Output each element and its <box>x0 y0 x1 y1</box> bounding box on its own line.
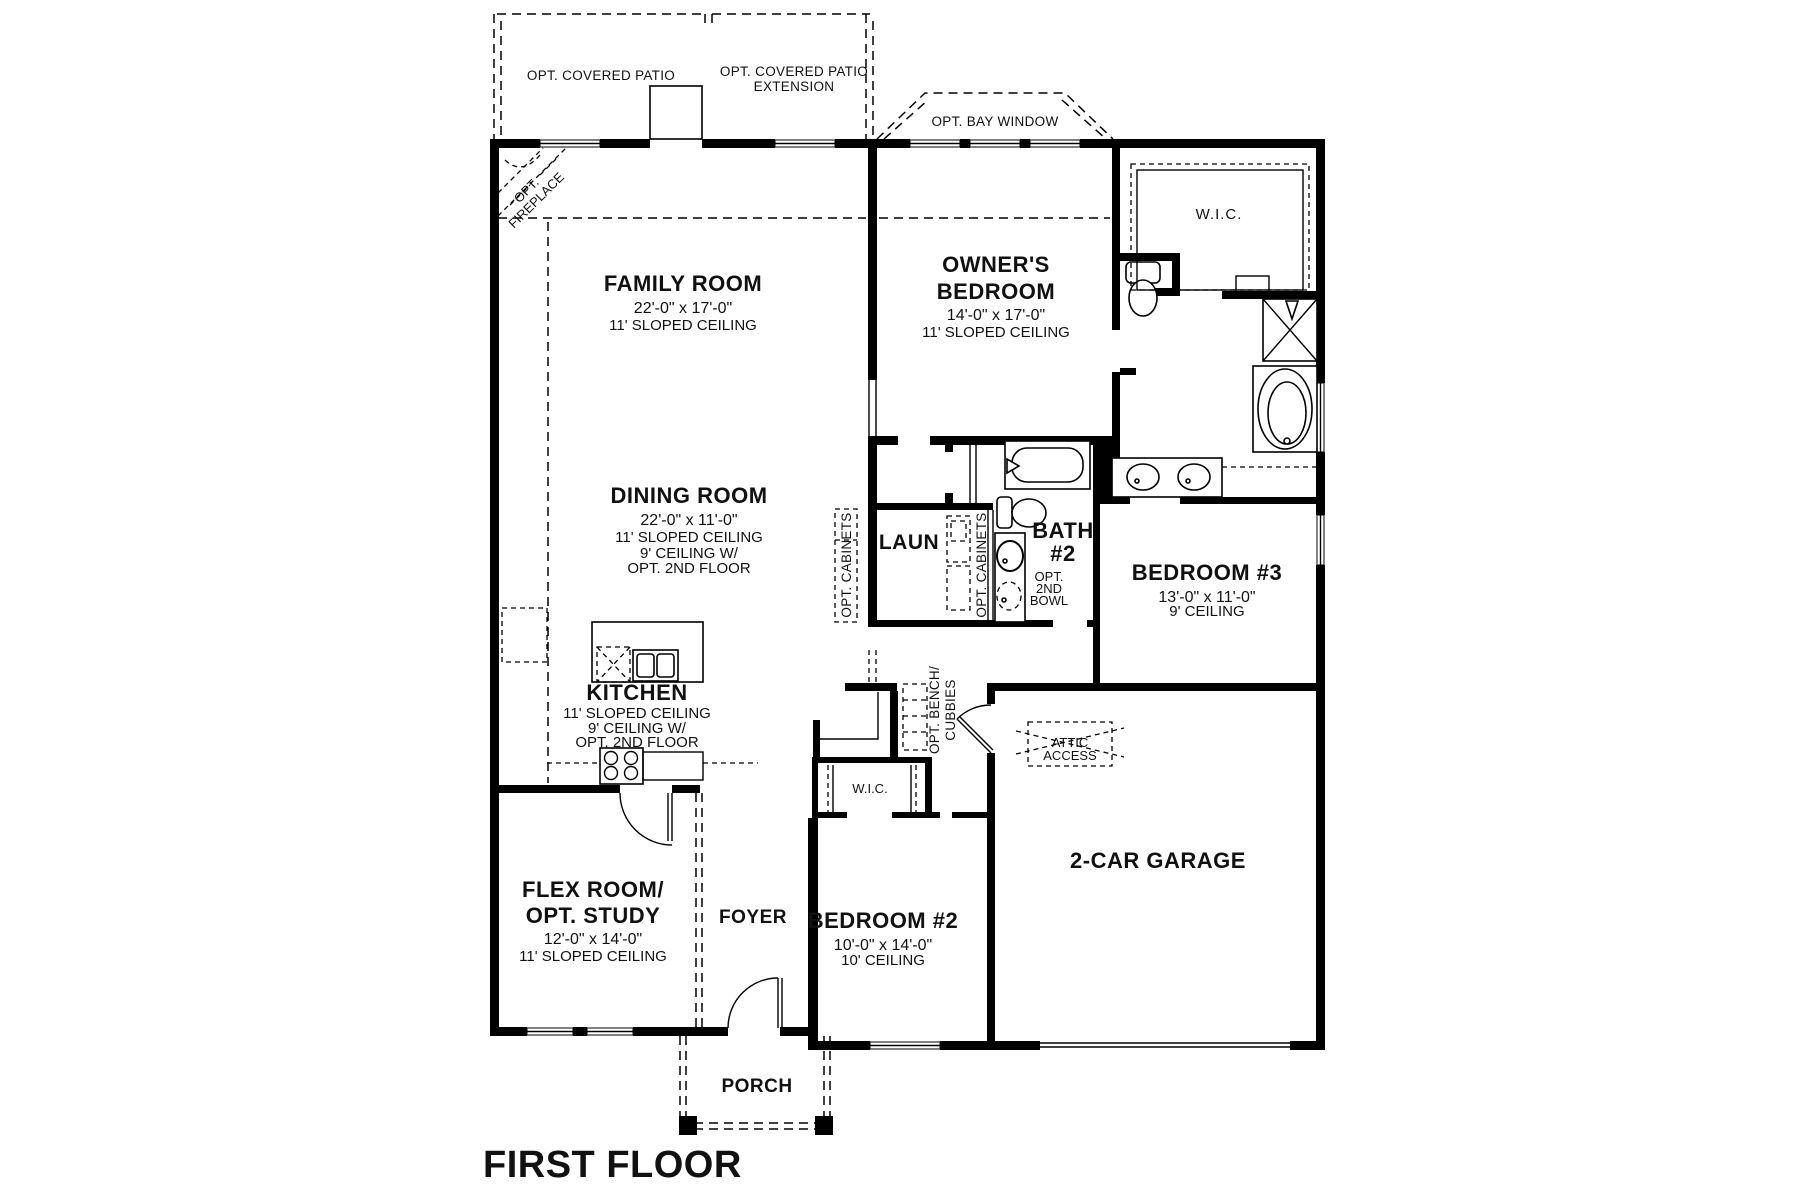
svg-text:OPT. 2ND FLOOR: OPT. 2ND FLOOR <box>627 560 751 577</box>
patio-door <box>650 86 702 139</box>
svg-text:KITCHEN: KITCHEN <box>586 680 687 705</box>
svg-text:14'-0" x 17'-0": 14'-0" x 17'-0" <box>947 307 1045 324</box>
svg-text:11' SLOPED CEILING: 11' SLOPED CEILING <box>615 529 763 546</box>
opt-covered-patio-label: OPT. COVERED PATIO <box>527 68 675 83</box>
foyer-label: FOYER <box>719 907 787 928</box>
shower <box>1263 299 1317 361</box>
bedroom2-wic-label: W.I.C. <box>852 781 887 796</box>
svg-text:22'-0" x 11'-0": 22'-0" x 11'-0" <box>640 512 737 529</box>
porch-label: PORCH <box>721 1076 792 1097</box>
foyer-flex-divider <box>696 793 702 1027</box>
counter-edge <box>815 692 878 739</box>
svg-text:BOWL: BOWL <box>1030 593 1068 608</box>
svg-text:BEDROOM #2: BEDROOM #2 <box>808 908 958 933</box>
svg-text:12'-0" x 14'-0": 12'-0" x 14'-0" <box>544 931 642 948</box>
svg-text:11' SLOPED CEILING: 11' SLOPED CEILING <box>519 948 667 965</box>
bath2-label: BATH #2 <box>1032 518 1093 566</box>
opt-second-bowl-label: OPT. 2ND BOWL <box>1030 569 1068 608</box>
opt-bay-window-label: OPT. BAY WINDOW <box>931 114 1058 129</box>
svg-text:#2: #2 <box>1050 541 1075 566</box>
owner-wic-label: W.I.C. <box>1196 206 1243 223</box>
bathtub <box>1005 441 1090 489</box>
svg-text:10' CEILING: 10' CEILING <box>841 952 925 969</box>
family-room-label: FAMILY ROOM 22'-0" x 17'-0" 11' SLOPED C… <box>604 271 762 334</box>
bedroom3-label: BEDROOM #3 13'-0" x 11'-0" 9' CEILING <box>1132 560 1282 620</box>
owners-bedroom-label: OWNER'S BEDROOM 14'-0" x 17'-0" 11' SLOP… <box>922 252 1070 341</box>
opt-fireplace-label: OPT. FIREPLACE <box>495 159 567 231</box>
svg-text:11' SLOPED CEILING: 11' SLOPED CEILING <box>609 317 757 334</box>
flex-room-label: FLEX ROOM/ OPT. STUDY 12'-0" x 14'-0" 11… <box>519 877 667 965</box>
svg-text:BEDROOM: BEDROOM <box>937 279 1055 304</box>
svg-text:BEDROOM #3: BEDROOM #3 <box>1132 560 1282 585</box>
svg-text:22'-0" x 17'-0": 22'-0" x 17'-0" <box>634 300 732 317</box>
opt-cabinets-right-label: OPT. CABINETS <box>974 512 989 617</box>
double-vanity <box>1112 458 1316 497</box>
opt-bench-outline <box>903 684 927 750</box>
svg-text:OPT. COVERED PATIO: OPT. COVERED PATIO <box>720 64 868 79</box>
svg-text:OWNER'S: OWNER'S <box>942 252 1050 277</box>
floor-plan-drawing: OPT. COVERED PATIO OPT. COVERED PATIO EX… <box>0 0 1800 1200</box>
svg-text:EXTENSION: EXTENSION <box>754 79 835 94</box>
svg-text:OPT. 2ND FLOOR: OPT. 2ND FLOOR <box>575 734 699 751</box>
svg-text:ACCESS: ACCESS <box>1043 748 1097 763</box>
svg-text:OPT. CABINETS: OPT. CABINETS <box>839 512 854 617</box>
garage-label: 2-CAR GARAGE <box>1070 848 1246 873</box>
svg-text:OPT. STUDY: OPT. STUDY <box>526 903 661 928</box>
mud-hall <box>815 684 927 750</box>
bathtub <box>1253 366 1317 452</box>
opt-cabinets-left-label: OPT. CABINETS <box>839 512 854 617</box>
svg-text:BATH: BATH <box>1032 518 1093 543</box>
svg-text:CUBBIES: CUBBIES <box>943 679 958 740</box>
svg-text:11' SLOPED CEILING: 11' SLOPED CEILING <box>922 324 1070 341</box>
dining-room-label: DINING ROOM 22'-0" x 11'-0" 11' SLOPED C… <box>610 483 767 577</box>
range <box>600 748 643 784</box>
kitchen-label: KITCHEN 11' SLOPED CEILING 9' CEILING W/… <box>563 680 711 751</box>
opt-bench-cubbies-label: OPT. BENCH/ CUBBIES <box>927 666 958 754</box>
attic-access-label: ATTIC ACCESS <box>1043 735 1097 763</box>
bedroom2-label: BEDROOM #2 10'-0" x 14'-0" 10' CEILING <box>808 908 958 969</box>
island <box>592 622 703 682</box>
opt-covered-patio-extension-label: OPT. COVERED PATIO EXTENSION <box>720 64 868 94</box>
laundry-label: LAUN <box>879 531 939 554</box>
svg-text:OPT. BENCH/: OPT. BENCH/ <box>927 666 942 754</box>
plan-title: FIRST FLOOR <box>483 1144 742 1186</box>
svg-text:FAMILY ROOM: FAMILY ROOM <box>604 271 762 296</box>
floor-plan-page: OPT. COVERED PATIO OPT. COVERED PATIO EX… <box>0 0 1800 1200</box>
counter <box>643 752 703 780</box>
svg-text:FLEX ROOM/: FLEX ROOM/ <box>522 877 664 902</box>
svg-text:9' CEILING: 9' CEILING <box>1169 603 1244 620</box>
svg-text:DINING ROOM: DINING ROOM <box>610 483 767 508</box>
vanity <box>995 533 1025 622</box>
svg-text:OPT. CABINETS: OPT. CABINETS <box>974 512 989 617</box>
toilet <box>1126 262 1160 316</box>
